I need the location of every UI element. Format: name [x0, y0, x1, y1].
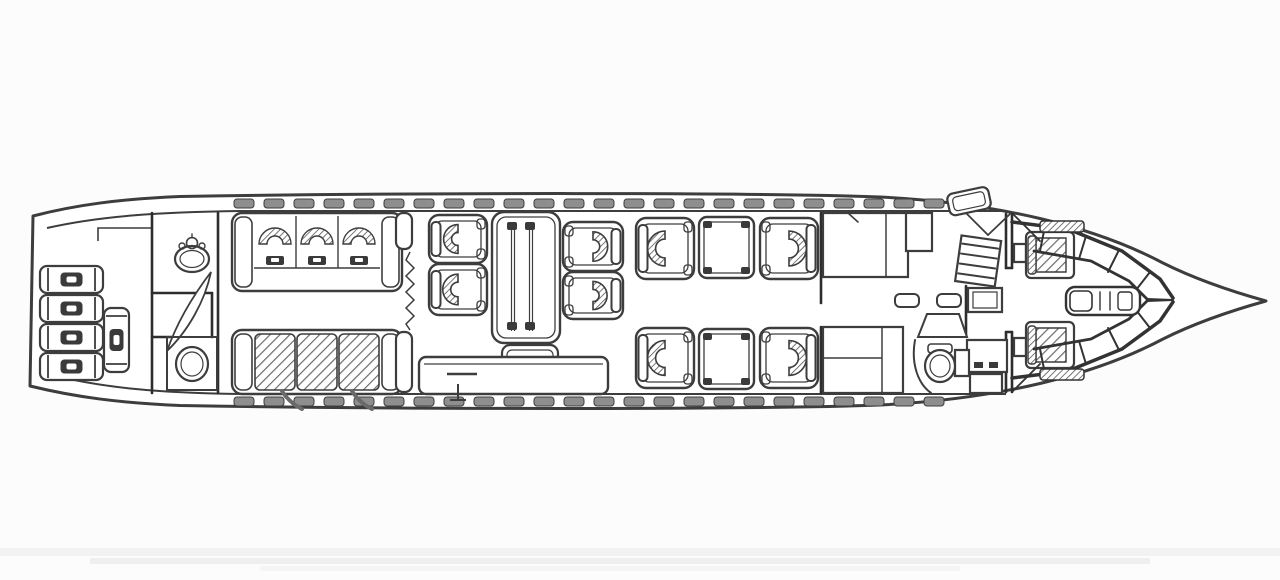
- cabin-window: [504, 397, 524, 406]
- cabin-window: [534, 199, 554, 208]
- suitcase: [40, 353, 103, 380]
- cabin-window: [744, 397, 764, 406]
- dining-chair-fwd-inboard: [563, 272, 623, 319]
- service-console: [918, 314, 967, 337]
- cabin-window: [894, 397, 914, 406]
- cabin-window: [594, 199, 614, 208]
- cabin-window: [564, 397, 584, 406]
- cabin-window: [624, 397, 644, 406]
- divan-cushion: [255, 334, 295, 390]
- cabin-window: [624, 199, 644, 208]
- cabin-window: [264, 199, 284, 208]
- cabin-window: [444, 199, 464, 208]
- divider-cap-inboard: [396, 332, 412, 392]
- divan-cushion: [297, 334, 337, 390]
- cabin-window: [294, 199, 314, 208]
- cabin-window: [594, 397, 614, 406]
- cabin-window: [324, 199, 344, 208]
- cabin-window: [864, 397, 884, 406]
- cabinet-handle: [989, 362, 998, 368]
- side-console: [1040, 369, 1084, 380]
- cabin-window: [384, 199, 404, 208]
- cabin-window: [714, 199, 734, 208]
- suitcase: [40, 266, 103, 293]
- cabin-window: [354, 199, 374, 208]
- cabin-window: [324, 397, 344, 406]
- cabin-floor-plan-diagram: [0, 0, 1280, 580]
- credenza: [419, 357, 608, 400]
- chair-back: [432, 222, 441, 256]
- cabin-window: [234, 199, 254, 208]
- cabin-window: [834, 199, 854, 208]
- crew-stowage-box: [955, 350, 969, 376]
- cockpit-console-fwd: [1014, 338, 1026, 356]
- cabin-window: [864, 199, 884, 208]
- conference-table: [492, 212, 560, 343]
- chair-back: [807, 225, 816, 272]
- galley-counter: [823, 327, 903, 393]
- cabin-window: [714, 397, 734, 406]
- cabin-window: [894, 199, 914, 208]
- dining-chair-aft-inboard: [429, 264, 487, 315]
- cabin-window: [834, 397, 854, 406]
- side-table: [699, 329, 754, 389]
- airstair-icon: [955, 235, 1001, 286]
- aft-divan-outboard: [232, 213, 402, 291]
- cabin-window: [414, 397, 434, 406]
- suitcase: [104, 308, 129, 372]
- suitcase: [40, 324, 103, 351]
- cabinet-handle: [974, 362, 983, 368]
- divan-cushion: [339, 334, 379, 390]
- cabin-window: [474, 397, 494, 406]
- crew-toilet-icon: [925, 344, 955, 382]
- cabin-window: [924, 199, 944, 208]
- floor-plan-page: [0, 0, 1280, 580]
- cockpit-console-aft: [1014, 244, 1026, 262]
- divider-cap-outboard: [396, 213, 412, 249]
- cabin-window: [654, 199, 674, 208]
- chair-back: [612, 279, 621, 312]
- club-chair-outboard-aft: [636, 218, 694, 279]
- cabin-window: [684, 397, 704, 406]
- cabin-window: [504, 199, 524, 208]
- cabin-window: [234, 397, 254, 406]
- cabin-window: [774, 199, 794, 208]
- chair-back: [639, 335, 648, 381]
- scan-artifacts: [0, 548, 1280, 571]
- club-chair-inboard-fwd: [760, 328, 818, 388]
- center-pedestal: [1066, 287, 1140, 315]
- cabin-window: [414, 199, 434, 208]
- cabin-window: [384, 397, 404, 406]
- closet-small: [906, 213, 932, 251]
- dining-chair-fwd-outboard: [563, 222, 623, 271]
- seat-back: [1028, 326, 1036, 364]
- chair-back: [432, 271, 441, 308]
- cabin-window: [804, 397, 824, 406]
- galley-cabinet-lower: [967, 340, 1007, 372]
- aft-divan-inboard: [232, 330, 402, 394]
- cabin-window: [774, 397, 794, 406]
- seat-back: [1028, 236, 1036, 274]
- chair-back: [807, 335, 816, 381]
- galley-cabinet-upper: [968, 288, 1002, 312]
- suitcase: [40, 295, 103, 322]
- cabin-window: [924, 397, 944, 406]
- chair-back: [612, 229, 621, 264]
- galley-cabinet-base: [970, 374, 1002, 393]
- cabin-window: [534, 397, 554, 406]
- chair-back: [639, 225, 648, 272]
- cabin-window: [744, 199, 764, 208]
- dining-chair-aft-outboard: [429, 215, 487, 263]
- galley-item: [895, 294, 919, 307]
- cabin-window: [804, 199, 824, 208]
- cabin-window: [654, 397, 674, 406]
- cabin-window: [684, 199, 704, 208]
- cabin-window: [444, 397, 464, 406]
- club-chair-outboard-fwd: [760, 218, 818, 279]
- cabin-window: [564, 199, 584, 208]
- wardrobe: [823, 213, 908, 277]
- side-table: [699, 217, 754, 278]
- galley-item: [937, 294, 961, 307]
- cabin-window: [474, 199, 494, 208]
- cabin-window: [264, 397, 284, 406]
- club-chair-inboard-aft: [636, 328, 694, 388]
- side-console: [1040, 221, 1084, 232]
